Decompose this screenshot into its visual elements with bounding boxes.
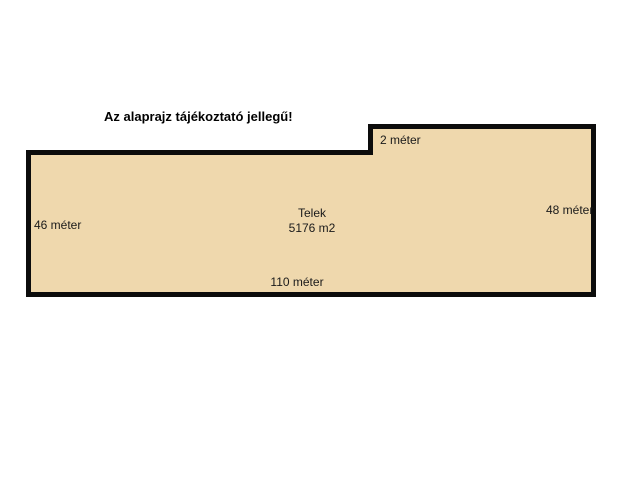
dimension-label-notch: 2 méter	[380, 133, 421, 147]
dimension-label-left: 46 méter	[34, 218, 81, 232]
dimension-label-bottom: 110 méter	[237, 275, 357, 289]
plot-center-labels: Telek 5176 m2	[252, 206, 372, 236]
plot-area-label: 5176 m2	[252, 221, 372, 236]
floor-plan-page: Az alaprajz tájékoztató jellegű! 2 méter…	[0, 0, 640, 480]
dimension-label-right: 48 méter	[546, 203, 593, 217]
plot-drawing	[0, 0, 640, 480]
plot-name-label: Telek	[252, 206, 372, 221]
